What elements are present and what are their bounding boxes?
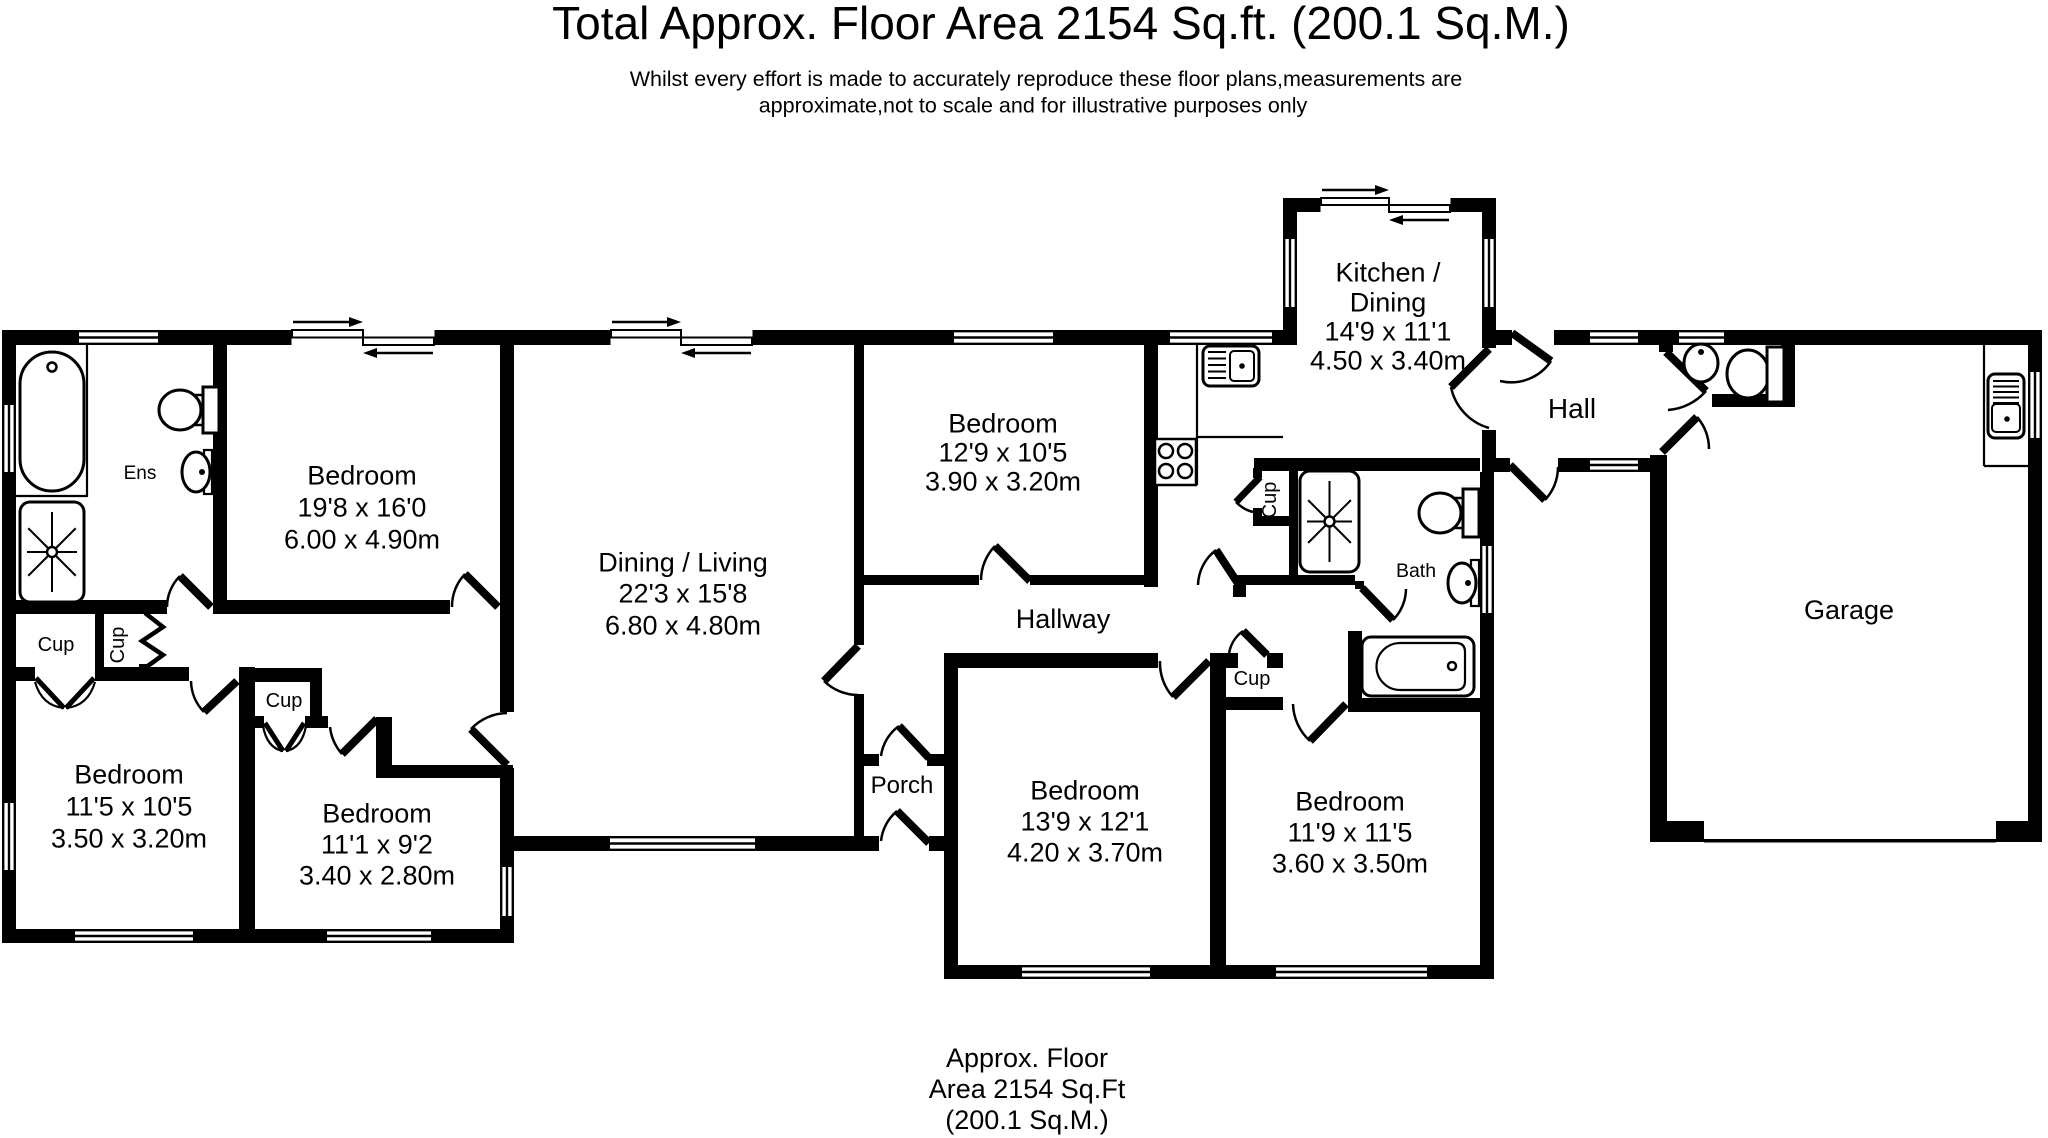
svg-text:6.00 x 4.90m: 6.00 x 4.90m [284, 524, 440, 554]
svg-text:(200.1 Sq.M.): (200.1 Sq.M.) [945, 1105, 1109, 1135]
svg-text:3.60 x 3.50m: 3.60 x 3.50m [1272, 848, 1428, 878]
svg-text:3.50 x 3.20m: 3.50 x 3.20m [51, 823, 207, 853]
svg-text:19'8 x 16'0: 19'8 x 16'0 [298, 492, 427, 522]
svg-text:Area 2154 Sq.Ft: Area 2154 Sq.Ft [929, 1074, 1126, 1104]
svg-text:Bedroom: Bedroom [1295, 786, 1405, 816]
svg-text:Cup: Cup [266, 690, 303, 712]
svg-text:Cup: Cup [1234, 668, 1271, 690]
svg-text:4.50 x 3.40m: 4.50 x 3.40m [1310, 345, 1466, 375]
svg-text:Bedroom: Bedroom [74, 759, 184, 789]
svg-text:Dining: Dining [1350, 287, 1427, 317]
svg-text:Cup: Cup [107, 627, 129, 664]
svg-text:approximate,not to scale and f: approximate,not to scale and for illustr… [759, 94, 1308, 118]
svg-text:14'9 x 11'1: 14'9 x 11'1 [1325, 316, 1452, 346]
svg-text:Hall: Hall [1548, 393, 1596, 424]
svg-text:6.80 x 4.80m: 6.80 x 4.80m [605, 610, 761, 640]
svg-text:Whilst every effort is made to: Whilst every effort is made to accuratel… [630, 67, 1463, 91]
svg-text:Porch: Porch [871, 772, 934, 799]
svg-text:3.40 x 2.80m: 3.40 x 2.80m [299, 860, 455, 890]
svg-text:Kitchen /: Kitchen / [1335, 257, 1441, 287]
svg-text:Dining / Living: Dining / Living [598, 547, 768, 577]
svg-text:Ens: Ens [124, 463, 157, 484]
svg-text:Bedroom: Bedroom [1030, 775, 1140, 805]
svg-text:11'9 x 11'5: 11'9 x 11'5 [1288, 817, 1413, 847]
svg-text:Cup: Cup [1259, 482, 1281, 519]
svg-text:Garage: Garage [1804, 595, 1894, 625]
svg-text:Bedroom: Bedroom [948, 408, 1058, 438]
svg-text:22'3 x 15'8: 22'3 x 15'8 [619, 578, 748, 608]
svg-text:Approx. Floor: Approx. Floor [946, 1043, 1108, 1073]
svg-text:Bath: Bath [1396, 560, 1436, 582]
svg-text:3.90 x 3.20m: 3.90 x 3.20m [925, 466, 1081, 496]
svg-text:Total Approx. Floor Area 2154: Total Approx. Floor Area 2154 Sq.ft. (20… [552, 0, 1570, 49]
svg-text:Hallway: Hallway [1016, 604, 1111, 634]
svg-text:13'9 x 12'1: 13'9 x 12'1 [1021, 806, 1150, 836]
svg-text:11'5 x 10'5: 11'5 x 10'5 [66, 791, 193, 821]
svg-text:12'9 x 10'5: 12'9 x 10'5 [939, 437, 1068, 467]
svg-text:4.20 x 3.70m: 4.20 x 3.70m [1007, 837, 1163, 867]
svg-text:Bedroom: Bedroom [307, 460, 417, 490]
svg-text:Cup: Cup [38, 634, 75, 656]
svg-text:11'1 x 9'2: 11'1 x 9'2 [321, 829, 433, 859]
svg-text:Bedroom: Bedroom [322, 798, 432, 828]
